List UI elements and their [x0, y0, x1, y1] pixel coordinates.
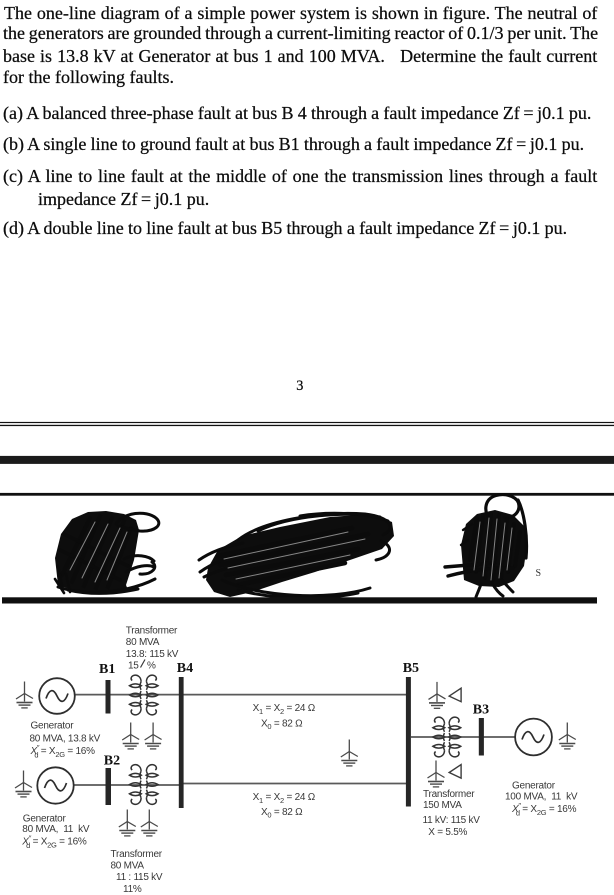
svg-text:X1 = X2 = 24 Ω: X1 = X2 = 24 Ω: [253, 703, 316, 716]
svg-text:X″d = X2G = 16%: X″d = X2G = 16%: [30, 743, 96, 760]
svg-text:Generator: Generator: [23, 814, 67, 825]
svg-text:80 MVA, 11 kV: 80 MVA, 11 kV: [22, 824, 90, 835]
svg-text:100 MVA, 11 kV: 100 MVA, 11 kV: [505, 791, 578, 802]
svg-text:B5: B5: [403, 661, 419, 676]
svg-text:X = 5.5%: X = 5.5%: [428, 827, 467, 838]
svg-text:X1 = X2 = 24 Ω: X1 = X2 = 24 Ω: [253, 792, 316, 805]
svg-text:B3: B3: [473, 702, 489, 717]
svg-text:B1: B1: [99, 662, 115, 677]
svg-text:Generator: Generator: [512, 780, 556, 791]
svg-text:X0 = 82 Ω: X0 = 82 Ω: [261, 718, 303, 731]
svg-text:Transformer: Transformer: [111, 849, 163, 860]
svg-text:15: 15: [128, 660, 139, 671]
svg-text:Generator: Generator: [31, 721, 75, 732]
svg-text:150 MVA: 150 MVA: [423, 800, 462, 811]
svg-text:Transformer: Transformer: [423, 789, 475, 800]
svg-text:S: S: [536, 568, 542, 579]
svg-text:11 kV: 115 kV: 11 kV: 115 kV: [423, 815, 481, 826]
svg-text:X″d = X2G = 16%: X″d = X2G = 16%: [511, 801, 577, 818]
svg-text:B2: B2: [104, 753, 120, 768]
svg-text:Transformer: Transformer: [126, 626, 178, 637]
svg-text:11%: 11%: [123, 884, 142, 895]
svg-text:80 MVA: 80 MVA: [111, 861, 145, 872]
svg-text:80 MVA, 13.8 kV: 80 MVA, 13.8 kV: [30, 733, 101, 744]
svg-text:B4: B4: [177, 661, 193, 676]
svg-text:%: %: [147, 660, 156, 671]
svg-text:80 MVA: 80 MVA: [126, 637, 160, 648]
svg-text:X0 = 82 Ω: X0 = 82 Ω: [261, 807, 303, 820]
svg-text:13.8: 115 kV: 13.8: 115 kV: [126, 649, 179, 660]
svg-text:11 : 115 kV: 11 : 115 kV: [116, 872, 163, 883]
svg-text:X″d = X2G = 16%: X″d = X2G = 16%: [21, 833, 87, 850]
